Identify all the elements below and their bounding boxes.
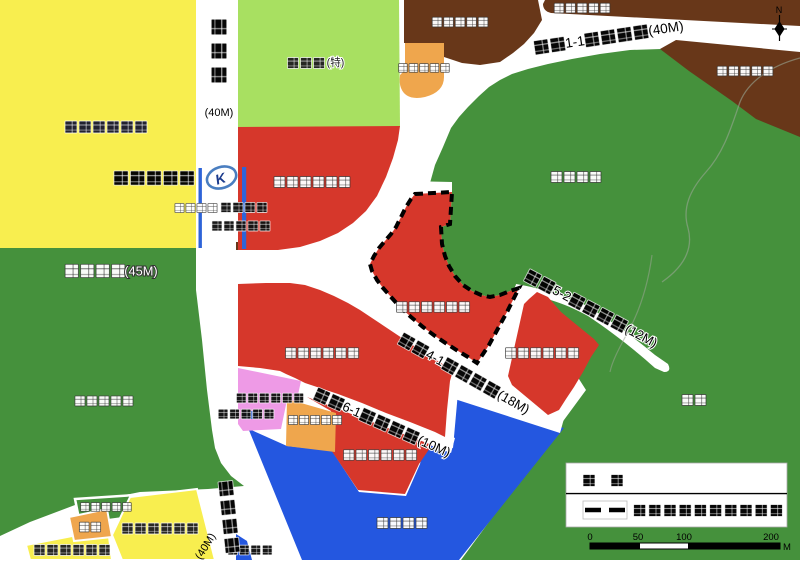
svg-text:0: 0 (587, 532, 592, 543)
svg-text:N: N (776, 5, 783, 15)
svg-text:(40M): (40M) (205, 107, 234, 119)
svg-text:(特): (特) (327, 57, 345, 69)
svg-text:50: 50 (633, 532, 644, 543)
svg-text:100: 100 (676, 532, 692, 543)
svg-text:1-1: 1-1 (564, 33, 586, 51)
svg-text:M: M (783, 542, 791, 553)
svg-text:200: 200 (763, 532, 779, 543)
svg-text:(45M): (45M) (124, 264, 157, 279)
